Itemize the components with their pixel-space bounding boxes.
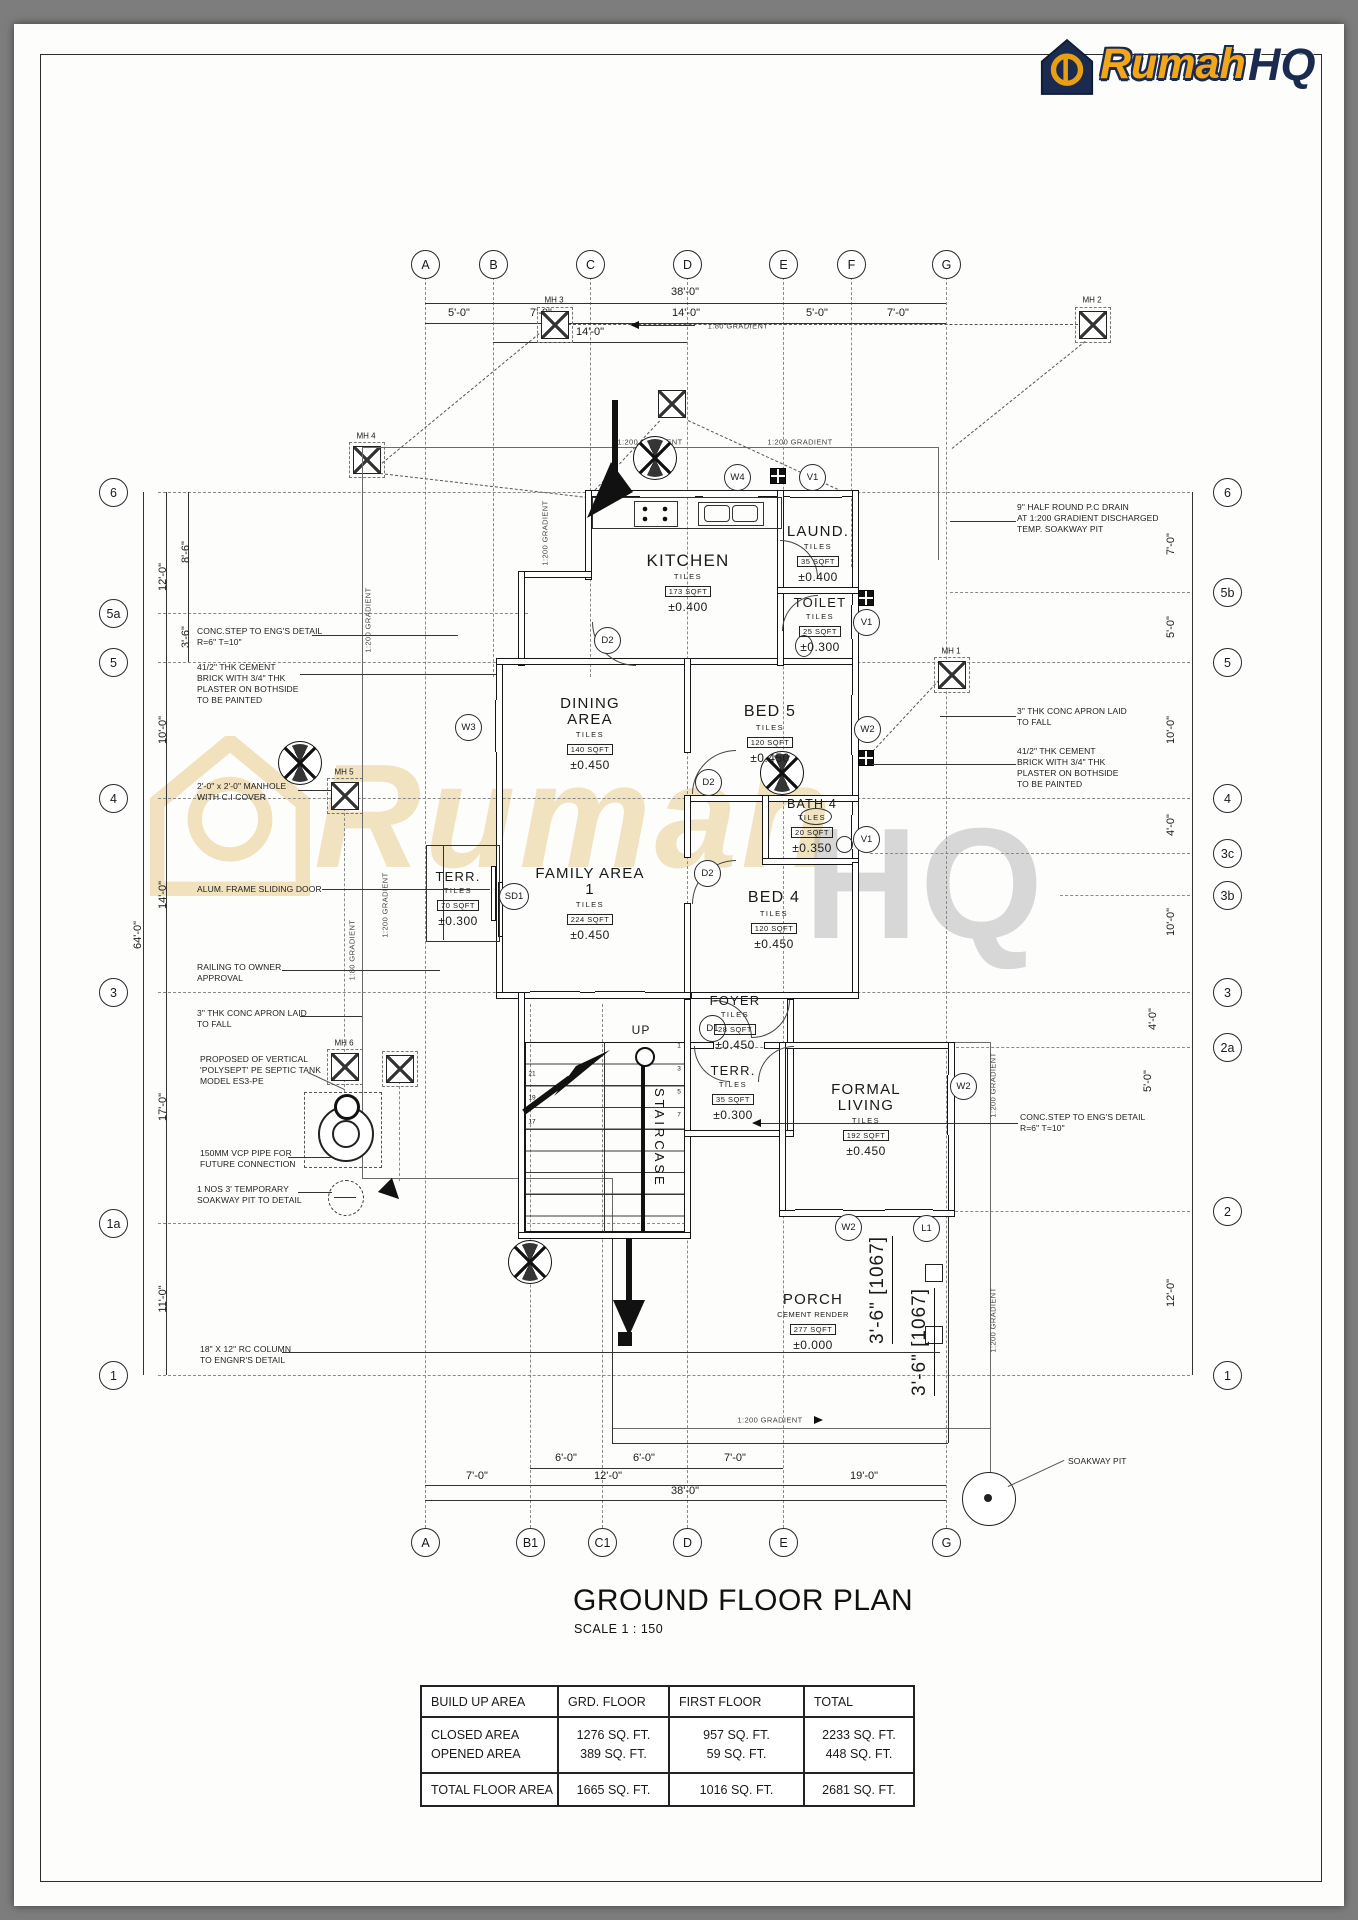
- dim-label: 4'-0": [1147, 1008, 1159, 1030]
- dim-label: 4'-0": [1165, 814, 1177, 836]
- area-summary-table: BUILD UP AREA GRD. FLOOR FIRST FLOOR TOT…: [420, 1685, 915, 1807]
- drain-line: [938, 447, 939, 560]
- manhole-icon: [938, 661, 966, 689]
- table-row-labels: CLOSED AREA OPENED AREA: [421, 1717, 558, 1773]
- drawing-title: GROUND FLOOR PLAN: [573, 1584, 913, 1618]
- dim-label: 3'-6" [1067]: [909, 1288, 935, 1396]
- room-label-laundry: LAUND. TILES 35 SQFT ±0.400: [773, 524, 863, 584]
- leader-line: [300, 674, 496, 675]
- manhole-icon: [386, 1055, 414, 1083]
- drain-grate-icon: [770, 468, 786, 484]
- grid-bubble-bottom: D: [673, 1528, 702, 1557]
- dim-label: 17'-0": [157, 1093, 169, 1121]
- grid-bubble-right: 6: [1213, 478, 1242, 507]
- grid-line: [493, 277, 494, 677]
- room-label-bath4: BATH 4 TILES 20 SQFT ±0.350: [767, 798, 857, 855]
- grid-bubble-bottom: C1: [588, 1528, 617, 1557]
- grid-bubble-left: 3: [99, 978, 128, 1007]
- temp-soakway-line: [334, 1197, 356, 1198]
- table-header: TOTAL: [804, 1686, 914, 1717]
- tag-vent: V1: [853, 826, 880, 853]
- gradient-label: 1:200 GRADIENT: [767, 438, 832, 447]
- tag-window: W2: [835, 1214, 862, 1241]
- manhole-label: MH 6: [334, 1039, 353, 1048]
- room-label-terrace2: TERR. TILES 35 SQFT ±0.300: [698, 1064, 768, 1122]
- logo: Rumah HQ: [1034, 34, 1334, 104]
- dim-line: [425, 1500, 946, 1501]
- grid-bubble-top: E: [769, 250, 798, 279]
- table-total-first: 1016 SQ. FT.: [669, 1773, 804, 1806]
- wall: [762, 858, 859, 865]
- gradient-label: 1:80 GRADIENT: [348, 920, 357, 981]
- dim-line: [425, 303, 946, 304]
- room-label-foyer: FOYER TILES 28 SQFT ±0.450: [695, 994, 775, 1052]
- logo-house-icon: [1040, 38, 1094, 96]
- leader-line: [940, 716, 1016, 717]
- grid-bubble-right: 3b: [1213, 881, 1242, 910]
- dim-label: 10'-0": [157, 716, 169, 744]
- table-total-grd: 1665 SQ. FT.: [558, 1773, 669, 1806]
- dim-label: 14'-0": [576, 326, 604, 338]
- dim-label: 14'-0": [672, 307, 700, 319]
- annotation: SOAKWAY PIT: [1068, 1456, 1127, 1467]
- arrow-icon: [814, 1416, 823, 1424]
- window: [530, 991, 580, 999]
- grid-bubble-right: 3: [1213, 978, 1242, 1007]
- porch-arrow-icon: [605, 1238, 649, 1338]
- dim-label: 6'-0": [633, 1452, 655, 1464]
- tag-sliding-door: SD1: [499, 883, 529, 910]
- table-row-grd: 1276 SQ. FT. 389 SQ. FT.: [558, 1717, 669, 1773]
- dim-label: 7'-0": [466, 1470, 488, 1482]
- leader-line: [282, 1352, 940, 1353]
- arrow-icon: [630, 321, 639, 329]
- wall: [684, 1130, 794, 1137]
- annotation: 150MM VCP PIPE FOR FUTURE CONNECTION: [200, 1148, 296, 1170]
- grid-bubble-left: 1a: [99, 1209, 128, 1238]
- dim-label: 19'-0": [850, 1470, 878, 1482]
- septic-tank-inner-icon: [332, 1120, 360, 1148]
- stair-arrow-icon: [518, 1048, 618, 1118]
- column-symbol-icon: [278, 741, 322, 785]
- drain-line: [612, 1428, 990, 1429]
- leader-line: [760, 1123, 1018, 1124]
- leader-line: [288, 1157, 332, 1158]
- table-row-total: 2233 SQ. FT. 448 SQ. FT.: [804, 1717, 914, 1773]
- room-label-porch: PORCH CEMENT RENDER 277 SQFT ±0.000: [773, 1292, 853, 1352]
- room-label-terrace1: TERR. TILES 70 SQFT ±0.300: [423, 870, 493, 928]
- window: [595, 991, 645, 999]
- leader-line: [312, 635, 458, 636]
- grid-bubble-right: 5: [1213, 648, 1242, 677]
- leader-line: [282, 970, 440, 971]
- temp-soakway-icon: [328, 1180, 364, 1216]
- annotation: PROPOSED OF VERTICAL 'POLYSEPT' PE SEPTI…: [200, 1054, 321, 1087]
- wall: [684, 903, 691, 999]
- sink-basin-icon: [732, 505, 758, 522]
- grid-bubble-top: B: [479, 250, 508, 279]
- septic-pipe-icon: [334, 1094, 360, 1120]
- grid-bubble-left: 6: [99, 478, 128, 507]
- room-label-formal-living: FORMAL LIVING TILES 192 SQFT ±0.450: [811, 1082, 921, 1158]
- gradient-label: 1:200 GRADIENT: [364, 587, 373, 652]
- manhole-label: MH 4: [356, 432, 375, 441]
- service-line: [344, 808, 345, 1092]
- dim-label: 5'-0": [1165, 616, 1177, 638]
- manhole-label: MH 2: [1082, 296, 1101, 305]
- dim-line: [166, 492, 167, 1375]
- dim-label: 10'-0": [1165, 908, 1177, 936]
- dim-label: 5'-0": [806, 307, 828, 319]
- annotation: 18" X 12" RC COLUMN TO ENGNR'S DETAIL: [200, 1344, 291, 1366]
- drain-line: [362, 447, 363, 1178]
- tag-door: D2: [695, 769, 722, 796]
- leader-line: [639, 325, 695, 326]
- table-row-first: 957 SQ. FT. 59 SQ. FT.: [669, 1717, 804, 1773]
- drawing-sheet: Rumah HQ Rumah HQ A B C D E F G 38'-0": [14, 24, 1344, 1906]
- manhole-label: MH 5: [334, 768, 353, 777]
- table-header: GRD. FLOOR: [558, 1686, 669, 1717]
- tag-door: D2: [594, 627, 621, 654]
- leader-line: [300, 1016, 362, 1017]
- table-total-total: 2681 SQ. FT.: [804, 1773, 914, 1806]
- dim-label: 14'-0": [157, 881, 169, 909]
- dim-label: 5'-0": [1142, 1070, 1154, 1092]
- dim-label: 64'-0": [132, 921, 144, 949]
- grid-bubble-left: 5a: [99, 599, 128, 628]
- dim-line: [1192, 492, 1193, 1375]
- drawing-scale: SCALE 1 : 150: [574, 1622, 663, 1636]
- manhole-icon: [331, 782, 359, 810]
- drain-grate-icon: [858, 590, 874, 606]
- leader-line: [950, 521, 1016, 522]
- wall: [779, 1042, 955, 1049]
- porch-edge: [612, 1443, 948, 1444]
- gradient-label: 1:200 GRADIENT: [541, 500, 550, 565]
- grid-bubble-bottom: E: [769, 1528, 798, 1557]
- tag-louvre: L1: [913, 1215, 940, 1242]
- wall: [518, 571, 525, 666]
- stair-start-icon: [635, 1047, 655, 1067]
- dim-line: [493, 342, 687, 343]
- staircase-label: STAIRCASE: [652, 1088, 667, 1188]
- grid-bubble-right: 4: [1213, 784, 1242, 813]
- column-symbol-icon: [508, 1240, 552, 1284]
- porch-column: [618, 1332, 632, 1346]
- dim-line: [530, 1468, 783, 1469]
- grid-bubble-top: C: [576, 250, 605, 279]
- tag-vent: V1: [799, 464, 826, 491]
- room-label-bed5: BED 5 TILES 120 SQFT ±0.450: [720, 704, 820, 765]
- grid-bubble-bottom: A: [411, 1528, 440, 1557]
- stair-runner: [641, 1052, 645, 1232]
- gradient-label: 1:200 GRADIENT: [737, 1416, 802, 1425]
- manhole-icon: [353, 446, 381, 474]
- grid-bubble-right: 2a: [1213, 1033, 1242, 1062]
- tag-window: W2: [854, 716, 881, 743]
- leader-line: [298, 790, 332, 791]
- dim-label: 7'-0": [1165, 533, 1177, 555]
- dim-label: 10'-0": [1165, 716, 1177, 744]
- gradient-label: 1:200 GRADIENT: [989, 1287, 998, 1352]
- grid-bubble-left: 5: [99, 648, 128, 677]
- grid-line: [158, 1375, 1190, 1376]
- annotation: CONC.STEP TO ENG'S DETAIL R=6" T=10": [197, 626, 322, 648]
- dim-label: 8'-6": [180, 541, 192, 563]
- room-label-toilet: TOILET TILES 25 SQFT ±0.300: [780, 596, 860, 654]
- annotation: 41/2" THK CEMENT BRICK WITH 3/4" THK PLA…: [1017, 746, 1119, 790]
- grid-line: [946, 277, 947, 1528]
- grid-bubble-left: 1: [99, 1361, 128, 1390]
- leader-line: [872, 764, 1016, 765]
- grid-bubble-right: 1: [1213, 1361, 1242, 1390]
- grid-bubble-right: 5b: [1213, 578, 1242, 607]
- tag-window: W2: [950, 1073, 977, 1100]
- manhole-icon: [1079, 311, 1107, 339]
- wall: [496, 992, 691, 999]
- annotation: 41/2" THK CEMENT BRICK WITH 3/4" THK PLA…: [197, 662, 299, 706]
- annotation: 2'-0" x 2'-0" MANHOLE WITH C.I COVER: [197, 781, 286, 803]
- logo-rumah-text: Rumah: [1100, 40, 1246, 89]
- gradient-label: 1:80 GRADIENT: [708, 322, 769, 331]
- gradient-label: 1:200 GRADIENT: [989, 1052, 998, 1117]
- dim-label: 6'-0": [555, 1452, 577, 1464]
- manhole-icon: [331, 1053, 359, 1081]
- grid-line: [158, 798, 1190, 799]
- roof-outlet-icon: [658, 390, 686, 418]
- stair-up-label: UP: [632, 1023, 651, 1037]
- wall: [777, 587, 859, 594]
- arrow-icon: [752, 1119, 761, 1127]
- dim-label: 3'-6": [180, 626, 192, 648]
- grid-bubble-top: G: [932, 250, 961, 279]
- dim-label: 12'-0": [157, 563, 169, 591]
- dim-label: 12'-0": [594, 1470, 622, 1482]
- wall: [684, 658, 691, 753]
- dim-label: 12'-0": [1165, 1279, 1177, 1307]
- table-header: BUILD UP AREA: [421, 1686, 558, 1717]
- grid-bubble-bottom: G: [932, 1528, 961, 1557]
- grid-bubble-top: D: [673, 250, 702, 279]
- soakway-pit-dot: [984, 1494, 992, 1502]
- porch-column: [925, 1264, 943, 1282]
- manhole-label: MH 3: [544, 296, 563, 305]
- wall: [518, 571, 592, 578]
- manhole-icon: [541, 311, 569, 339]
- annotation: 9" HALF ROUND P.C DRAIN AT 1:200 GRADIEN…: [1017, 502, 1159, 535]
- entry-arrow-icon: [585, 400, 655, 520]
- annotation: ALUM. FRAME SLIDING DOOR: [197, 884, 322, 895]
- dim-label: 38'-0": [671, 1485, 699, 1497]
- room-label-family: FAMILY AREA 1 TILES 224 SQFT ±0.450: [535, 866, 645, 942]
- window: [795, 1209, 843, 1217]
- window: [495, 700, 503, 752]
- wall: [684, 999, 691, 1239]
- wall: [852, 862, 859, 999]
- wall: [496, 658, 859, 665]
- porch-edge: [948, 1217, 949, 1443]
- service-line: [399, 1081, 400, 1181]
- tag-door: D2: [694, 860, 721, 887]
- dim-label: 5'-0": [448, 307, 470, 319]
- grid-bubble-top: A: [411, 250, 440, 279]
- grid-line: [940, 1211, 1190, 1212]
- room-label-dining: DINING AREA TILES 140 SQFT ±0.450: [544, 696, 636, 772]
- annotation: CONC.STEP TO ENG'S DETAIL R=6" T=10": [1020, 1112, 1145, 1134]
- manhole-label: MH 1: [941, 647, 960, 656]
- grid-bubble-bottom: B1: [516, 1528, 545, 1557]
- room-label-bed4: BED 4 TILES 120 SQFT ±0.450: [724, 890, 824, 951]
- tag-window: W4: [724, 464, 751, 491]
- grid-line: [870, 853, 1190, 854]
- grid-line: [950, 592, 1190, 593]
- annotation: 1 NOS 3' TEMPORARY SOAKWAY PIT TO DETAIL: [197, 1184, 302, 1206]
- annotation: 3" THK CONC APRON LAID TO FALL: [197, 1008, 307, 1030]
- dim-label: 3'-6" [1067]: [867, 1236, 893, 1344]
- dim-label: 38'-0": [671, 286, 699, 298]
- room-label-kitchen: KITCHEN TILES 173 SQFT ±0.400: [623, 552, 753, 614]
- tag-window: W3: [455, 714, 482, 741]
- grid-bubble-right: 2: [1213, 1197, 1242, 1226]
- dim-label: 7'-0": [887, 307, 909, 319]
- annotation: RAILING TO OWNER APPROVAL: [197, 962, 281, 984]
- dim-label: 11'-0": [157, 1285, 169, 1312]
- wall: [684, 795, 691, 858]
- table-header: FIRST FLOOR: [669, 1686, 804, 1717]
- grid-bubble-left: 4: [99, 784, 128, 813]
- dim-label: 7'-0": [724, 1452, 746, 1464]
- leader-line: [298, 1192, 332, 1193]
- sink-basin-icon: [704, 505, 730, 522]
- annotation: 3" THK CONC APRON LAID TO FALL: [1017, 706, 1127, 728]
- gradient-label: 1:200 GRADIENT: [381, 872, 390, 937]
- leader-line: [322, 889, 490, 890]
- grid-line: [158, 613, 528, 614]
- window: [790, 490, 842, 498]
- table-total-label: TOTAL FLOOR AREA: [421, 1773, 558, 1806]
- grid-line: [1060, 895, 1190, 896]
- grid-bubble-top: F: [837, 250, 866, 279]
- grid-bubble-right: 3c: [1213, 839, 1242, 868]
- logo-hq-text: HQ: [1248, 39, 1316, 91]
